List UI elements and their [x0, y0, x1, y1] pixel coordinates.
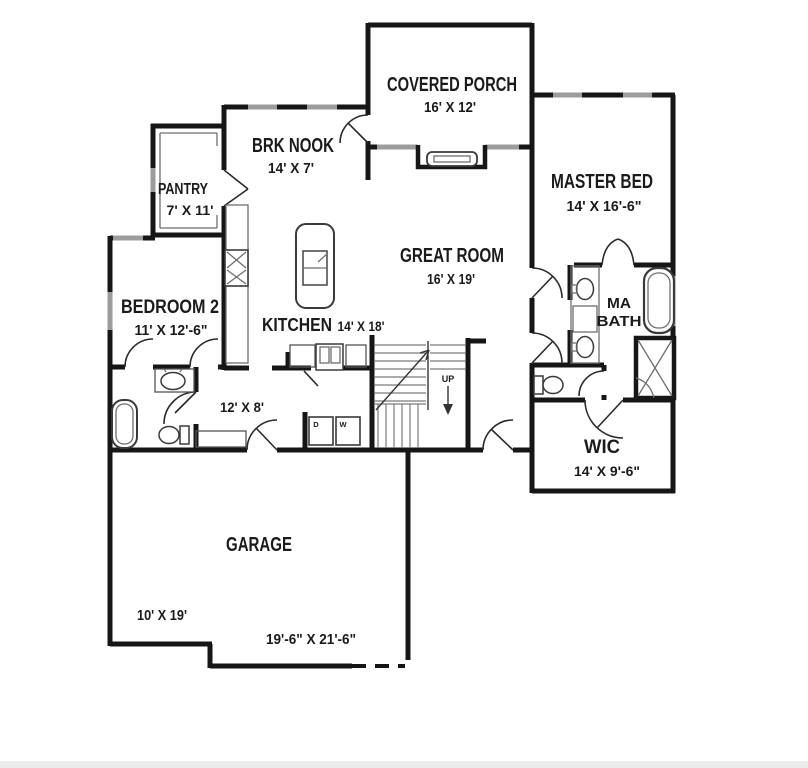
room-label-master-bed: MASTER BED — [551, 171, 653, 193]
bedroom2-doors — [125, 339, 218, 367]
room-label-great-room: GREAT ROOM — [400, 245, 504, 267]
room-label-brk-nook: BRK NOOK — [252, 135, 334, 157]
porch-door — [340, 115, 368, 143]
room-label-bedroom-2: BEDROOM 2 — [121, 297, 219, 318]
room-dims-bedroom-2: 11' X 12'-6" — [135, 322, 208, 339]
garage-entry-door — [247, 420, 277, 450]
master-bath-door — [602, 239, 634, 265]
wic-door — [585, 400, 623, 438]
up-arrow-head — [443, 404, 453, 415]
pantry-door — [224, 170, 248, 206]
room-label-pantry: PANTRY — [158, 181, 208, 198]
bath-toilet-icon — [159, 426, 189, 444]
foyer-door — [483, 420, 513, 450]
room-dims-garage: 19'-6" X 21'-6" — [266, 631, 356, 648]
room-dims-hall: 12' X 8' — [220, 399, 264, 415]
room-dims-master-bed: 14' X 16'-6" — [567, 198, 642, 215]
bath-door — [164, 392, 196, 424]
master-shower-icon — [636, 338, 674, 398]
master-vanity — [571, 266, 599, 363]
room-label-garage: GARAGE — [226, 534, 292, 556]
great-room-to-master-hall-door — [532, 268, 562, 298]
master-tub-icon — [644, 268, 674, 333]
mudroom-bench — [196, 431, 246, 447]
room-label-covered-porch: COVERED PORCH — [387, 74, 517, 96]
room-label-kitchen: KITCHEN — [262, 315, 332, 335]
room-dims-covered-porch: 16' X 12' — [424, 99, 476, 116]
staircase — [374, 341, 466, 448]
room-dims-kitchen: 14' X 18' — [338, 318, 385, 334]
stairs-up-label: UP — [442, 374, 455, 384]
floor-plan-drawing: COVERED PORCH 16' X 12' BRK NOOK 14' X 7… — [0, 0, 808, 768]
room-dims2-garage: 10' X 19' — [137, 607, 187, 624]
room-dims-wic: 14' X 9'-6" — [574, 463, 640, 479]
floor-plan-page: COVERED PORCH 16' X 12' BRK NOOK 14' X 7… — [0, 0, 808, 768]
porch-fireplace-unit — [418, 145, 485, 167]
dryer-label: D — [313, 420, 319, 429]
kitchen-island — [296, 224, 334, 308]
powder-door — [532, 333, 562, 363]
wc-toilet-icon — [534, 376, 563, 394]
bath-sink-icon — [155, 369, 194, 392]
image-bottom-edge — [0, 761, 808, 768]
laundry-door — [304, 371, 318, 386]
washer-label: W — [339, 420, 347, 429]
wc-door — [579, 371, 604, 396]
room-dims-great-room: 16' X 19' — [427, 271, 475, 288]
room-label-ma-bath-line2: BATH — [597, 313, 642, 330]
room-label-wic: WIC — [584, 437, 620, 458]
room-dims-brk-nook: 14' X 7' — [268, 160, 314, 177]
cooktop-icon — [225, 250, 248, 286]
room-dims-pantry: 7' X 11' — [167, 202, 214, 218]
bathtub-icon — [112, 400, 137, 448]
room-label-ma-bath-line1: MA — [607, 295, 631, 312]
